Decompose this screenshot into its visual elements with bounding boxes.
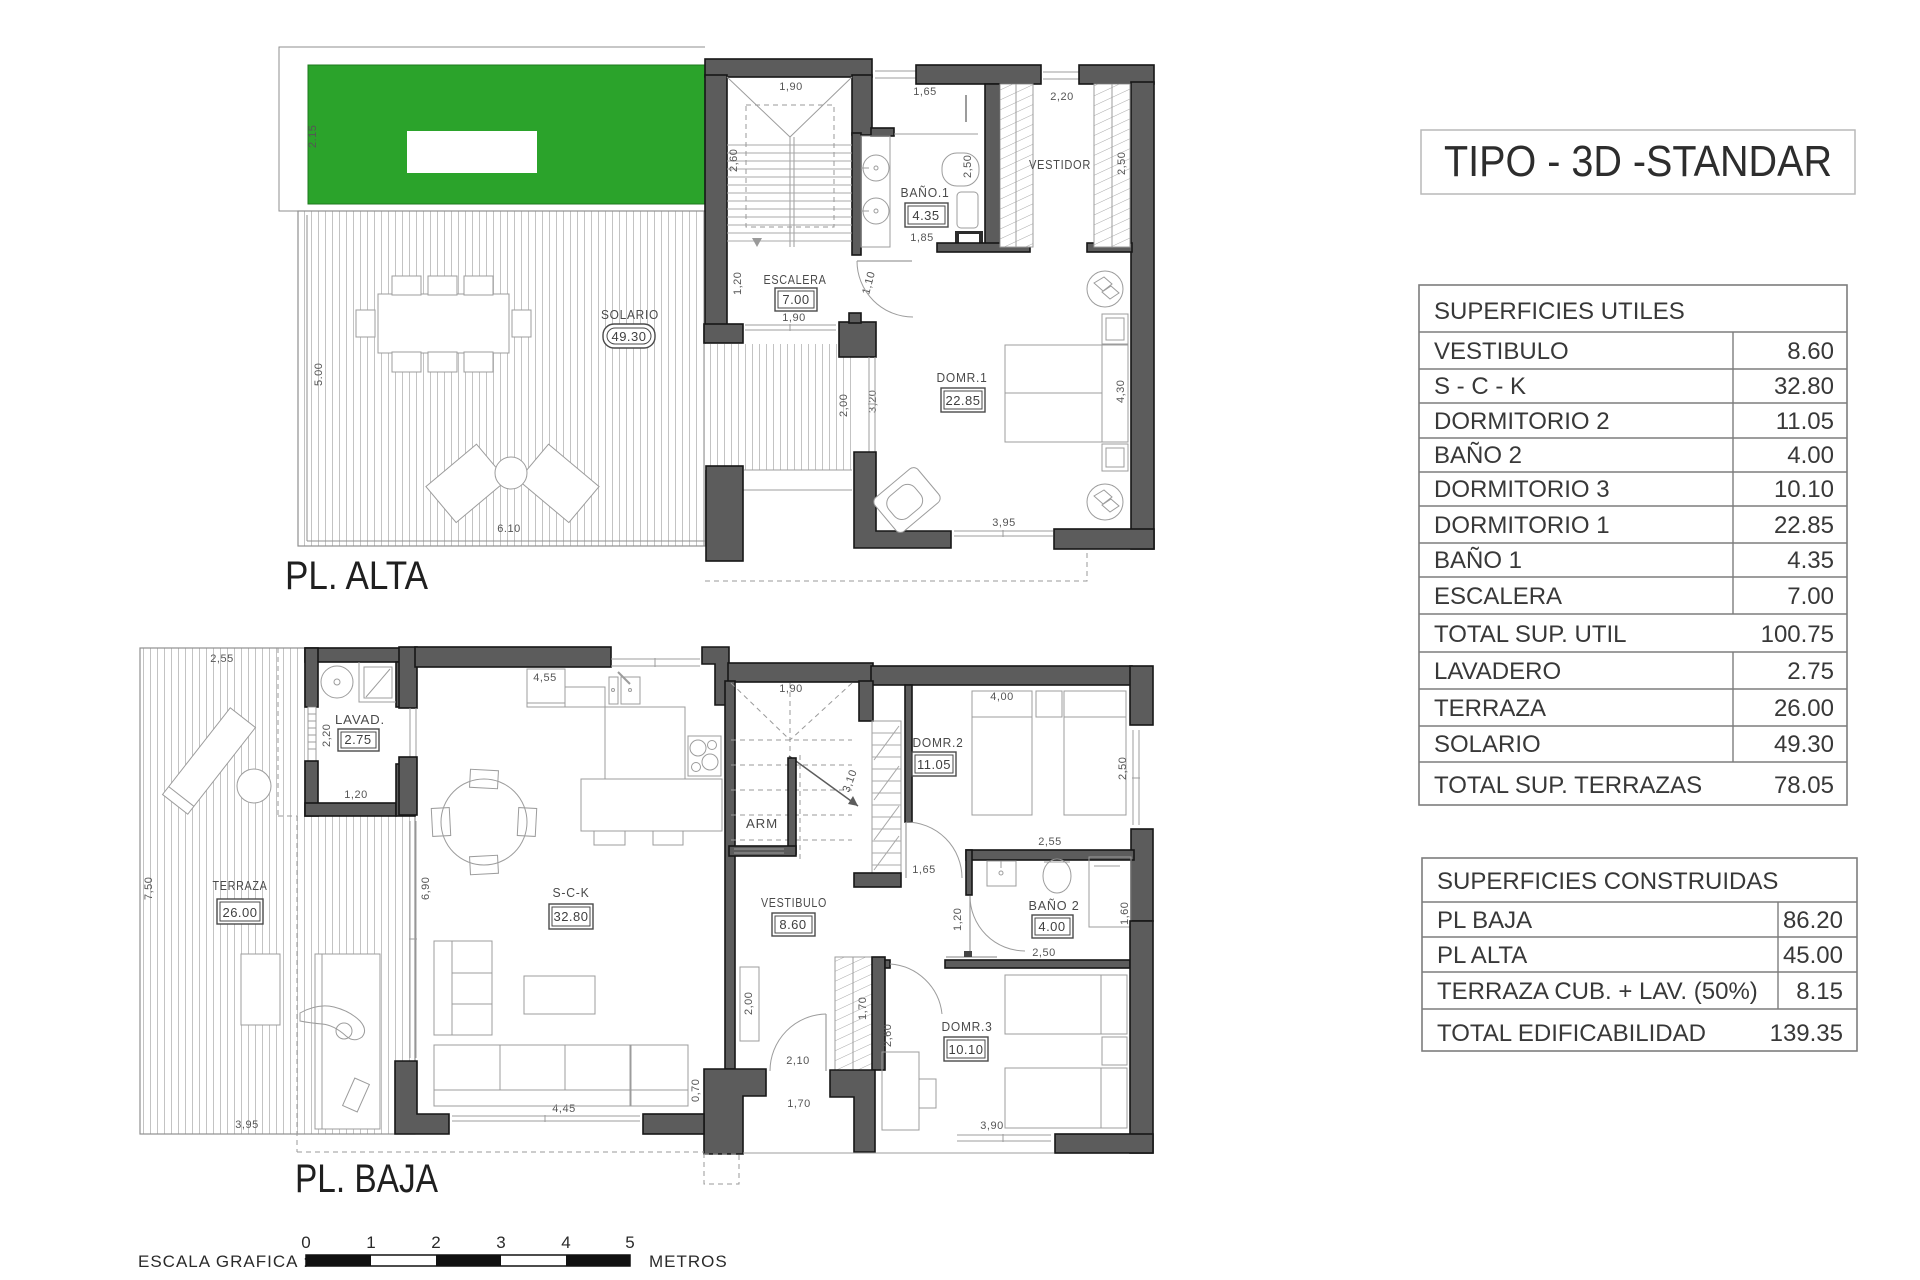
svg-text:4.00: 4.00 (1787, 442, 1834, 469)
svg-text:TERRAZA CUB. + LAV. (50%): TERRAZA CUB. + LAV. (50%) (1437, 978, 1758, 1005)
svg-text:TOTAL SUP. TERRAZAS: TOTAL SUP. TERRAZAS (1434, 772, 1702, 799)
svg-text:1,60: 1,60 (1119, 902, 1131, 925)
svg-text:0,70: 0,70 (690, 1079, 702, 1102)
svg-text:4: 4 (561, 1233, 570, 1252)
svg-text:2,55: 2,55 (210, 653, 233, 665)
svg-text:7,50: 7,50 (143, 877, 155, 900)
svg-text:2: 2 (431, 1233, 440, 1252)
svg-text:1,20: 1,20 (952, 908, 964, 931)
svg-text:1: 1 (366, 1233, 375, 1252)
svg-text:1,70: 1,70 (857, 997, 869, 1020)
svg-text:1,20: 1,20 (732, 272, 744, 295)
svg-text:DORMITORIO 1: DORMITORIO 1 (1434, 512, 1610, 539)
svg-text:METROS: METROS (649, 1252, 728, 1271)
svg-text:ARM: ARM (746, 816, 778, 831)
svg-text:TOTAL SUP. UTIL: TOTAL SUP. UTIL (1434, 621, 1627, 648)
svg-text:2.75: 2.75 (1787, 658, 1834, 685)
svg-text:BAÑO 2: BAÑO 2 (1434, 442, 1522, 469)
svg-text:5: 5 (625, 1233, 634, 1252)
svg-text:2,60: 2,60 (728, 149, 740, 172)
svg-text:1,20: 1,20 (344, 789, 367, 801)
svg-text:1,65: 1,65 (913, 86, 936, 98)
svg-text:LAVADERO: LAVADERO (1434, 658, 1561, 685)
svg-text:2,10: 2,10 (786, 1055, 809, 1067)
svg-text:2,50: 2,50 (962, 155, 974, 178)
svg-text:78.05: 78.05 (1774, 772, 1834, 799)
svg-text:S-C-K: S-C-K (553, 885, 590, 900)
svg-text:6,90: 6,90 (420, 877, 432, 900)
svg-text:DORMITORIO 3: DORMITORIO 3 (1434, 476, 1610, 503)
svg-text:11.05: 11.05 (917, 757, 951, 772)
svg-text:SUPERFICIES UTILES: SUPERFICIES UTILES (1434, 298, 1685, 325)
svg-text:11.05: 11.05 (1776, 408, 1834, 435)
svg-text:PL. ALTA: PL. ALTA (285, 554, 428, 598)
svg-text:TERRAZA: TERRAZA (1434, 695, 1546, 722)
svg-text:1,90: 1,90 (779, 683, 802, 695)
svg-text:3,95: 3,95 (235, 1119, 258, 1131)
svg-text:45.00: 45.00 (1783, 942, 1843, 969)
svg-text:3,95: 3,95 (992, 517, 1015, 529)
svg-text:2,00: 2,00 (838, 394, 850, 417)
svg-text:100.75: 100.75 (1761, 621, 1834, 648)
svg-text:BAÑO 1: BAÑO 1 (1434, 547, 1522, 574)
svg-text:2.75: 2.75 (344, 732, 371, 747)
svg-text:TOTAL EDIFICABILIDAD: TOTAL EDIFICABILIDAD (1437, 1020, 1706, 1047)
svg-text:1,85: 1,85 (910, 232, 933, 244)
svg-text:4,00: 4,00 (990, 691, 1013, 703)
svg-text:6.10: 6.10 (497, 523, 520, 535)
svg-text:22.85: 22.85 (945, 393, 980, 408)
svg-text:26.00: 26.00 (222, 905, 257, 920)
svg-text:PL BAJA: PL BAJA (1437, 907, 1532, 934)
svg-text:2,50: 2,50 (1032, 947, 1055, 959)
svg-text:2,60: 2,60 (882, 1024, 894, 1047)
svg-text:26.00: 26.00 (1774, 695, 1834, 722)
svg-text:1,90: 1,90 (782, 312, 805, 324)
svg-text:VESTIBULO: VESTIBULO (1434, 338, 1569, 365)
svg-text:3: 3 (496, 1233, 505, 1252)
svg-text:22.85: 22.85 (1774, 512, 1834, 539)
svg-text:2,20: 2,20 (1050, 91, 1073, 103)
svg-text:10.10: 10.10 (1774, 476, 1834, 503)
svg-text:ESCALERA: ESCALERA (764, 272, 827, 287)
svg-text:VESTIDOR: VESTIDOR (1029, 157, 1091, 172)
svg-text:5.00: 5.00 (313, 363, 325, 386)
svg-text:8.15: 8.15 (1796, 978, 1843, 1005)
svg-text:86.20: 86.20 (1783, 907, 1843, 934)
svg-text:2,00: 2,00 (743, 992, 755, 1015)
svg-text:32.80: 32.80 (1774, 373, 1834, 400)
svg-text:ESCALA GRAFICA :: ESCALA GRAFICA : (138, 1252, 309, 1271)
svg-text:DOMR.3: DOMR.3 (942, 1019, 993, 1034)
svg-text:SOLARIO: SOLARIO (601, 307, 659, 322)
svg-text:TERRAZA: TERRAZA (213, 878, 268, 893)
svg-text:2,50: 2,50 (1116, 152, 1128, 175)
svg-text:2,55: 2,55 (1038, 836, 1061, 848)
svg-text:SUPERFICIES CONSTRUIDAS: SUPERFICIES CONSTRUIDAS (1437, 868, 1778, 895)
svg-text:PL ALTA: PL ALTA (1437, 942, 1527, 969)
svg-text:3,90: 3,90 (980, 1120, 1003, 1132)
svg-text:DOMR.2: DOMR.2 (913, 735, 964, 750)
svg-text:4.35: 4.35 (1787, 547, 1834, 574)
svg-text:2,20: 2,20 (321, 724, 333, 747)
svg-text:139.35: 139.35 (1770, 1020, 1843, 1047)
svg-text:TIPO - 3D -STANDAR: TIPO - 3D -STANDAR (1444, 137, 1832, 186)
svg-text:10.10: 10.10 (948, 1042, 983, 1057)
svg-text:7.00: 7.00 (1787, 583, 1834, 610)
svg-text:8.60: 8.60 (1787, 338, 1834, 365)
svg-text:4,55: 4,55 (533, 672, 556, 684)
svg-text:32.80: 32.80 (553, 909, 588, 924)
svg-text:PL. BAJA: PL. BAJA (295, 1157, 438, 1201)
svg-text:S - C - K: S - C - K (1434, 373, 1526, 400)
svg-text:1,90: 1,90 (779, 81, 802, 93)
svg-text:DORMITORIO 2: DORMITORIO 2 (1434, 408, 1610, 435)
svg-text:7.00: 7.00 (782, 292, 809, 307)
svg-text:4.35: 4.35 (912, 208, 939, 223)
svg-text:1,70: 1,70 (787, 1098, 810, 1110)
svg-text:ESCALERA: ESCALERA (1434, 583, 1562, 610)
svg-text:BAÑO.1: BAÑO.1 (901, 185, 950, 200)
svg-text:4.00: 4.00 (1038, 919, 1065, 934)
svg-text:49.30: 49.30 (611, 329, 646, 344)
svg-text:1,65: 1,65 (912, 864, 935, 876)
svg-text:LAVAD.: LAVAD. (335, 712, 385, 727)
svg-text:2.15: 2.15 (307, 125, 319, 148)
svg-text:4,30: 4,30 (1115, 380, 1127, 403)
svg-text:BAÑO 2: BAÑO 2 (1029, 898, 1080, 913)
svg-text:4,45: 4,45 (552, 1103, 575, 1115)
svg-text:2,50: 2,50 (1117, 757, 1129, 780)
svg-text:0: 0 (301, 1233, 310, 1252)
svg-text:VESTIBULO: VESTIBULO (761, 895, 827, 910)
svg-text:SOLARIO: SOLARIO (1434, 731, 1541, 758)
svg-text:DOMR.1: DOMR.1 (937, 370, 988, 385)
svg-text:49.30: 49.30 (1774, 731, 1834, 758)
svg-text:8.60: 8.60 (779, 917, 806, 932)
